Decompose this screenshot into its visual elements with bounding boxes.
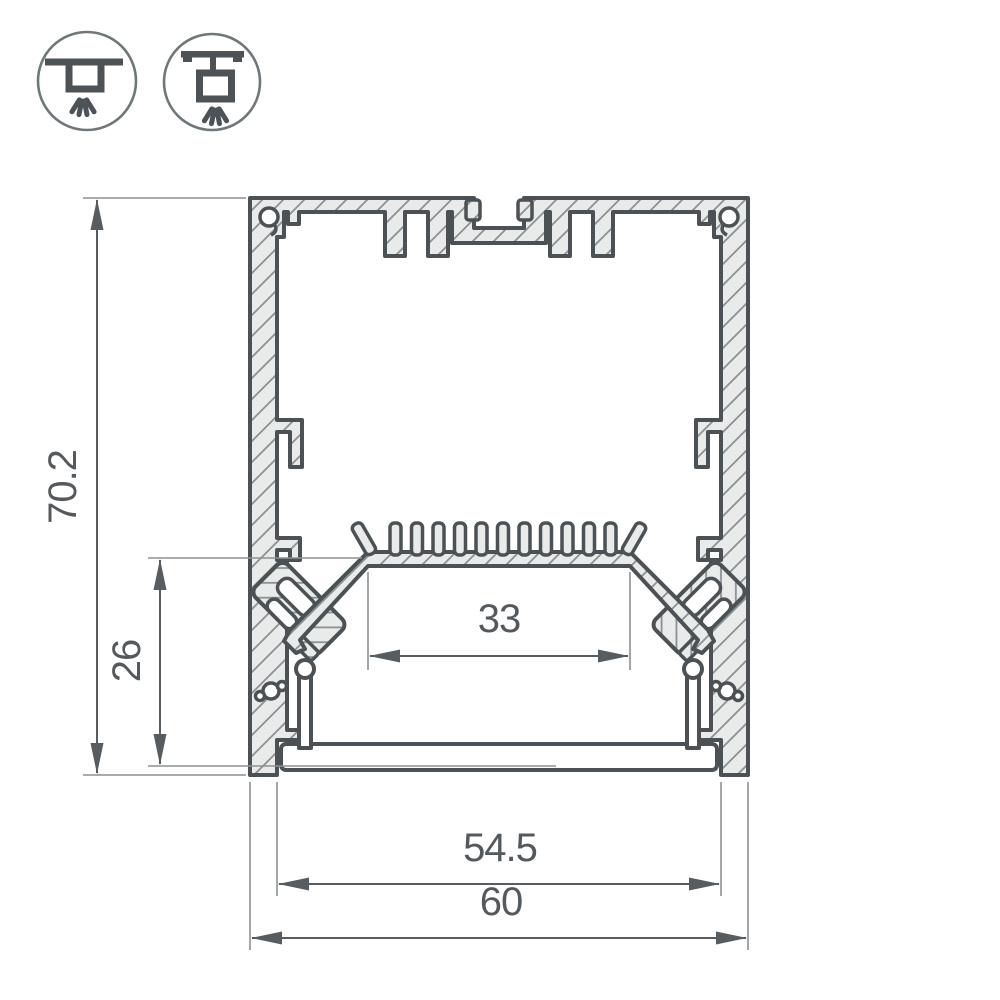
- surface-mounted-luminaire-icon: [38, 32, 136, 130]
- diffuser-bulb-left: [296, 660, 314, 678]
- dim-label-26: 26: [105, 640, 149, 683]
- dim-label-33: 33: [478, 597, 521, 641]
- suspended-luminaire-icon: [164, 34, 260, 130]
- profile-cross-section: [246, 198, 752, 775]
- slot-hook-right: [518, 200, 532, 220]
- light-rays-icon: [204, 109, 226, 124]
- ceiling-tick-right: [233, 56, 242, 62]
- fixture-box: [200, 73, 232, 99]
- dimension-total-height: 70.2: [41, 198, 246, 775]
- ceiling-bar: [45, 59, 123, 66]
- diffuser: [281, 660, 717, 770]
- dim-label-70-2: 70.2: [41, 450, 85, 524]
- profile-shell: [250, 198, 748, 775]
- technical-drawing: 70.2 26 33 54.5 60: [0, 0, 1000, 1000]
- dim-label-54-5: 54.5: [463, 826, 537, 870]
- diffuser-bulb-right: [684, 660, 702, 678]
- diffuser-lip-left: [299, 676, 311, 748]
- light-rays-icon: [72, 100, 94, 115]
- dim-label-60: 60: [480, 880, 523, 924]
- fixture-box: [69, 64, 101, 89]
- diffuser-lip-right: [687, 676, 699, 748]
- ceiling-tick-left: [183, 56, 192, 62]
- slot-hook-left: [466, 200, 480, 220]
- dimension-opening-width: 54.5: [277, 782, 721, 896]
- dimension-led-shelf-width: 33: [368, 572, 630, 670]
